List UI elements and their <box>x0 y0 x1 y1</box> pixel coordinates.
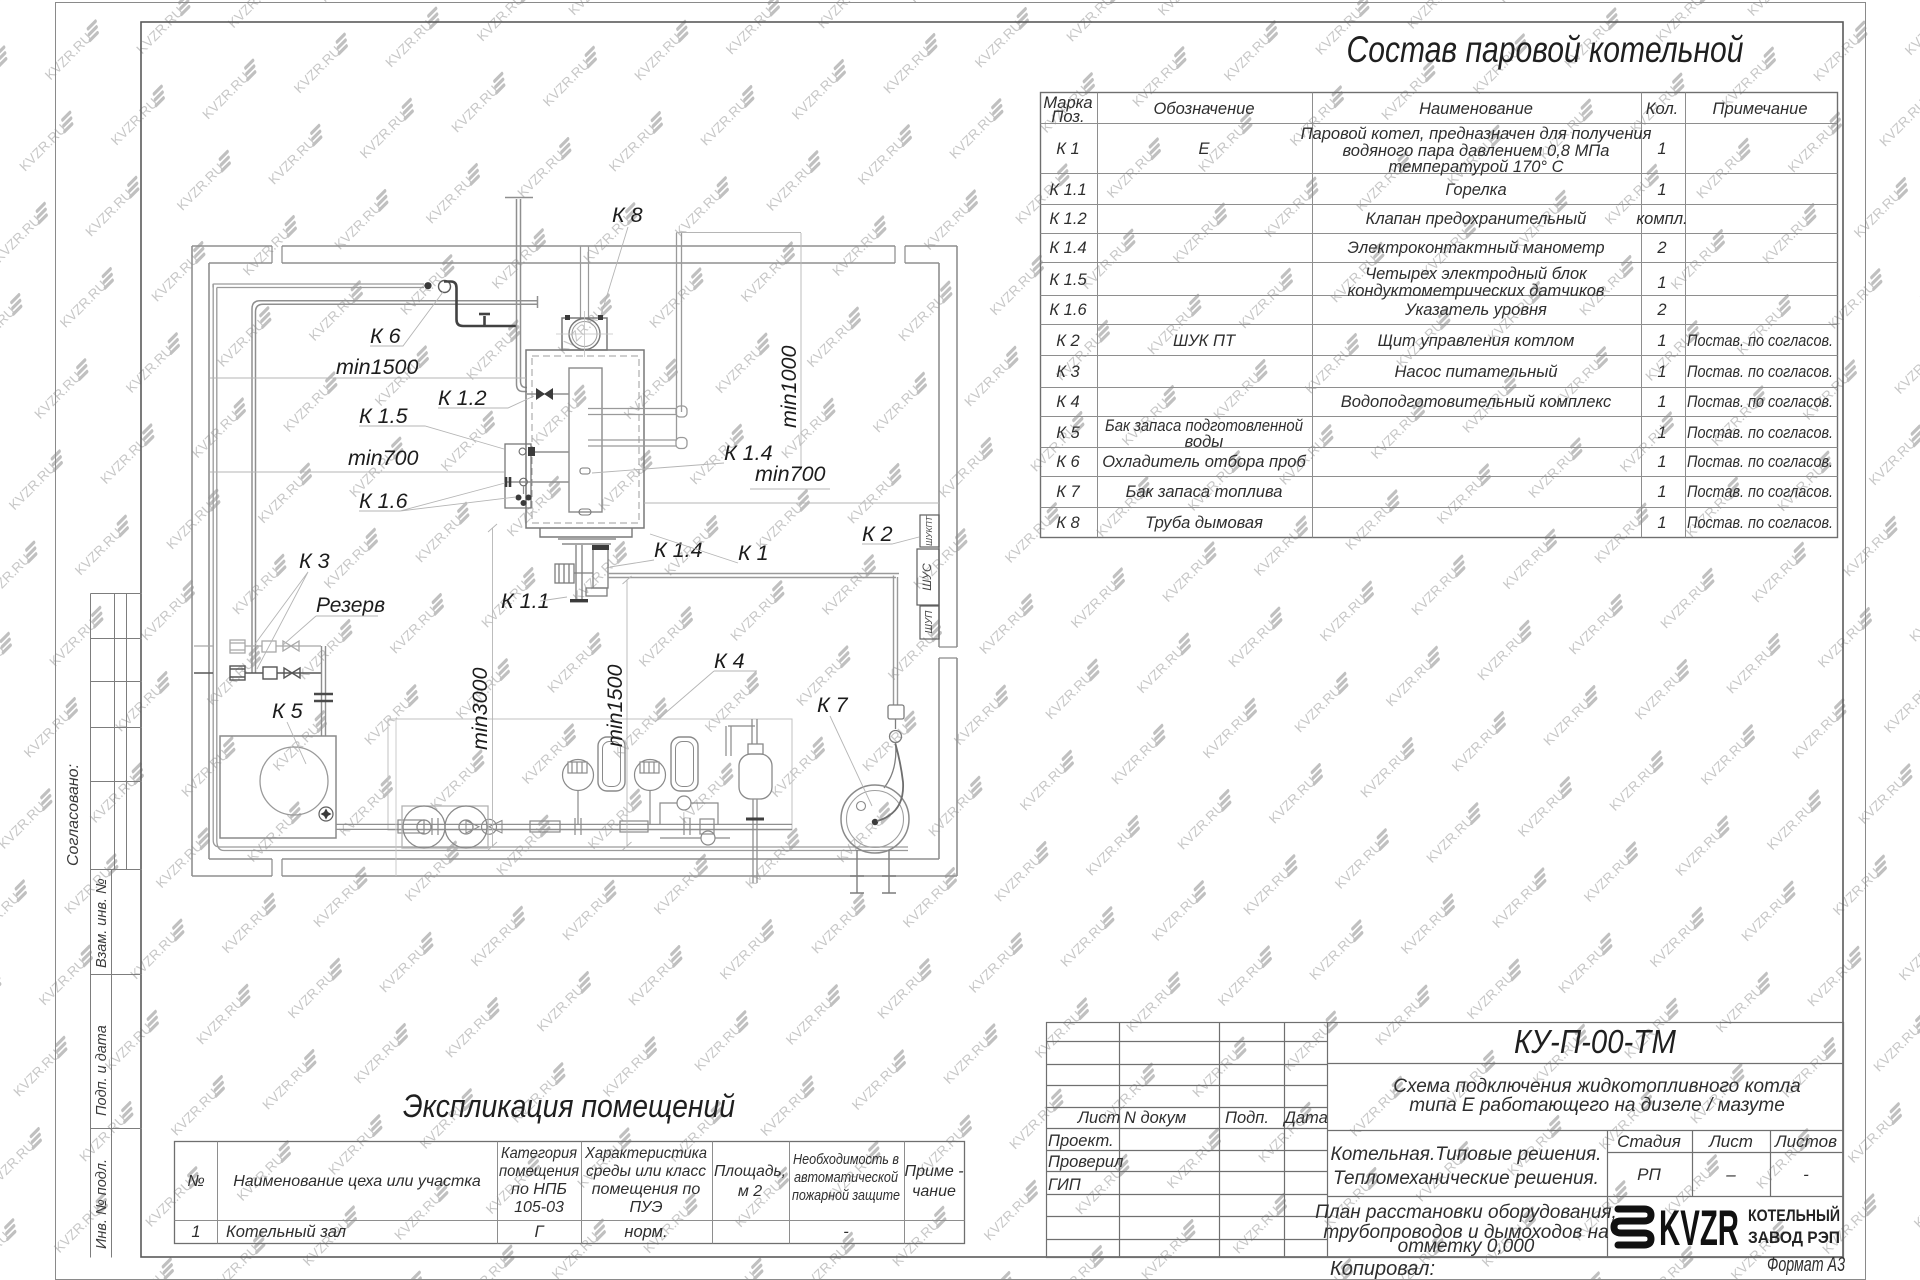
svg-text:min3000: min3000 <box>468 667 492 750</box>
svg-text:1: 1 <box>1657 453 1666 471</box>
svg-text:ШУС: ШУС <box>920 563 934 591</box>
svg-text:Охладитель отбора проб: Охладитель отбора проб <box>1102 453 1306 471</box>
svg-text:Е: Е <box>1198 140 1210 158</box>
svg-text:Дата: Дата <box>1282 1109 1328 1127</box>
svg-text:К 1.5: К 1.5 <box>359 404 409 428</box>
svg-text:К 7: К 7 <box>817 693 849 717</box>
svg-text:Паровой котел, предназначен дл: Паровой котел, предназначен для получени… <box>1301 125 1652 143</box>
svg-text:Листов: Листов <box>1774 1132 1837 1151</box>
svg-text:N докум: N докум <box>1124 1109 1186 1127</box>
svg-text:Котельная.Типовые решения.: Котельная.Типовые решения. <box>1331 1144 1602 1165</box>
svg-text:К 3: К 3 <box>1056 363 1080 381</box>
svg-text:К 1.2: К 1.2 <box>1049 210 1086 228</box>
svg-text:1: 1 <box>1657 424 1666 442</box>
svg-text:Формат А3: Формат А3 <box>1767 1254 1845 1276</box>
svg-text:Щит управления котлом: Щит управления котлом <box>1378 332 1575 350</box>
svg-text:К 1: К 1 <box>738 541 769 565</box>
svg-text:типа Е работающего на дизеле /: типа Е работающего на дизеле / мазуте <box>1409 1095 1785 1116</box>
svg-text:Насос питательный: Насос питательный <box>1394 363 1557 381</box>
svg-text:min1500: min1500 <box>603 664 627 747</box>
svg-text:Схема подключения жидкотопливн: Схема подключения жидкотопливного котла <box>1393 1076 1801 1097</box>
svg-text:Примечание: Примечание <box>1712 100 1807 118</box>
svg-text:Бак запаса топлива: Бак запаса топлива <box>1126 483 1283 501</box>
svg-text:Наименование: Наименование <box>1419 100 1533 118</box>
svg-text:пожарной защите: пожарной защите <box>792 1188 900 1204</box>
svg-text:ПУЭ: ПУЭ <box>629 1199 662 1216</box>
svg-text:К 1.2: К 1.2 <box>438 386 487 410</box>
svg-text:Постав. по согласов.: Постав. по согласов. <box>1687 363 1833 381</box>
svg-text:1: 1 <box>1657 274 1666 292</box>
svg-text:Согласовано:: Согласовано: <box>65 764 82 866</box>
svg-text:№: № <box>187 1173 204 1190</box>
svg-text:Копировал:: Копировал: <box>1330 1258 1435 1280</box>
svg-text:Необходимость в: Необходимость в <box>793 1152 899 1168</box>
svg-text:Стадия: Стадия <box>1617 1132 1681 1151</box>
svg-text:по НПБ: по НПБ <box>511 1181 567 1198</box>
svg-text:К 7: К 7 <box>1056 483 1080 501</box>
svg-text:кондуктометрических датчиков: кондуктометрических датчиков <box>1347 282 1604 300</box>
svg-text:автоматической: автоматической <box>794 1170 898 1186</box>
svg-text:Четырех электродный блок: Четырех электродный блок <box>1365 265 1588 283</box>
svg-text:Категория: Категория <box>501 1145 577 1162</box>
svg-text:К 6: К 6 <box>370 324 401 348</box>
svg-text:помещения: помещения <box>499 1163 579 1180</box>
svg-text:Клапан предохранительный: Клапан предохранительный <box>1366 210 1587 228</box>
svg-text:Обозначение: Обозначение <box>1153 100 1254 118</box>
svg-text:Экспликация помещений: Экспликация помещений <box>403 1088 735 1124</box>
svg-text:Постав. по согласов.: Постав. по согласов. <box>1687 483 1833 501</box>
svg-text:КОТЕЛЬНЫЙ: КОТЕЛЬНЫЙ <box>1748 1206 1840 1225</box>
svg-text:ШУК ПТ: ШУК ПТ <box>1173 332 1237 350</box>
svg-text:К 4: К 4 <box>714 649 745 673</box>
svg-text:105-03: 105-03 <box>514 1199 564 1216</box>
svg-text:Тепломеханические решения.: Тепломеханические решения. <box>1333 1168 1599 1189</box>
svg-text:-: - <box>843 1223 849 1241</box>
svg-text:К 4: К 4 <box>1056 393 1080 411</box>
svg-text:отметку 0,000: отметку 0,000 <box>1398 1236 1535 1257</box>
svg-text:К 1: К 1 <box>1056 140 1080 158</box>
svg-text:РП: РП <box>1637 1165 1661 1184</box>
svg-text:Резерв: Резерв <box>316 594 385 617</box>
svg-text:К 8: К 8 <box>612 203 643 227</box>
svg-text:К 3: К 3 <box>299 549 330 573</box>
svg-text:1: 1 <box>1657 393 1666 411</box>
svg-text:чание: чание <box>912 1183 956 1200</box>
svg-text:температурой 170° С: температурой 170° С <box>1388 158 1563 176</box>
svg-text:Лист: Лист <box>1077 1109 1120 1127</box>
svg-text:Наименование цеха или участка: Наименование цеха или участка <box>233 1173 481 1190</box>
svg-text:ШУКПТ: ШУКПТ <box>924 515 934 545</box>
svg-text:2: 2 <box>1656 301 1666 319</box>
svg-text:Постав. по согласов.: Постав. по согласов. <box>1687 393 1833 411</box>
svg-text:Постав. по согласов.: Постав. по согласов. <box>1687 514 1833 532</box>
svg-text:Подп. и дата: Подп. и дата <box>94 1025 110 1116</box>
svg-text:1: 1 <box>1657 483 1666 501</box>
svg-text:Площадь,: Площадь, <box>714 1163 786 1180</box>
svg-text:min1500: min1500 <box>336 355 419 379</box>
svg-text:Труба дымовая: Труба дымовая <box>1145 514 1263 532</box>
svg-text:–: – <box>1725 1165 1736 1184</box>
svg-text:KVZR: KVZR <box>1659 1200 1739 1256</box>
svg-text:Водоподготовительный комплекс: Водоподготовительный комплекс <box>1341 393 1612 411</box>
svg-text:1: 1 <box>1657 332 1666 350</box>
svg-text:Постав. по согласов.: Постав. по согласов. <box>1687 424 1833 442</box>
svg-text:Состав паровой котельной: Состав паровой котельной <box>1347 29 1744 70</box>
svg-text:-: - <box>1803 1165 1809 1184</box>
svg-text:1: 1 <box>1657 140 1666 158</box>
svg-text:min1000: min1000 <box>777 345 801 428</box>
svg-text:Постав. по согласов.: Постав. по согласов. <box>1687 453 1833 471</box>
svg-text:К 8: К 8 <box>1056 514 1080 532</box>
svg-text:среды или класс: среды или класс <box>586 1163 706 1180</box>
svg-text:Электроконтактный манометр: Электроконтактный манометр <box>1347 239 1604 257</box>
svg-text:План расстановки оборудования,: План расстановки оборудования, <box>1315 1202 1617 1223</box>
svg-text:1: 1 <box>191 1223 200 1241</box>
svg-text:К 1.4: К 1.4 <box>654 538 703 562</box>
svg-text:min700: min700 <box>755 462 826 486</box>
svg-text:помещения по: помещения по <box>592 1181 701 1198</box>
svg-text:Кол.: Кол. <box>1646 100 1678 118</box>
svg-text:Постав. по согласов.: Постав. по согласов. <box>1687 332 1833 350</box>
svg-text:К 2: К 2 <box>862 522 893 546</box>
svg-text:м 2: м 2 <box>738 1183 762 1200</box>
svg-text:min700: min700 <box>348 446 419 470</box>
svg-text:1: 1 <box>1657 514 1666 532</box>
svg-text:К 2: К 2 <box>1056 332 1080 350</box>
svg-text:Проект.: Проект. <box>1048 1132 1114 1150</box>
svg-text:К 1.6: К 1.6 <box>1049 301 1087 319</box>
svg-text:норм.: норм. <box>624 1223 667 1241</box>
svg-text:Поз.: Поз. <box>1051 108 1084 126</box>
svg-text:Лист: Лист <box>1708 1132 1753 1151</box>
svg-text:ГИП: ГИП <box>1048 1176 1081 1194</box>
svg-text:1: 1 <box>1657 363 1666 381</box>
svg-text:К 5: К 5 <box>1056 424 1080 442</box>
svg-text:Характеристика: Характеристика <box>584 1145 707 1162</box>
svg-text:Подп.: Подп. <box>1225 1109 1269 1127</box>
svg-text:Горелка: Горелка <box>1445 181 1506 199</box>
svg-text:ШУП: ШУП <box>924 610 935 634</box>
svg-text:Проверил: Проверил <box>1048 1153 1123 1171</box>
svg-text:Приме -: Приме - <box>904 1163 963 1180</box>
svg-text:Г: Г <box>535 1223 545 1241</box>
svg-text:К 1.1: К 1.1 <box>1049 181 1086 199</box>
svg-text:К 6: К 6 <box>1056 453 1080 471</box>
svg-text:К 1.6: К 1.6 <box>359 489 408 513</box>
svg-text:К 1.5: К 1.5 <box>1049 271 1087 289</box>
svg-text:ЗАВОД РЭП: ЗАВОД РЭП <box>1748 1228 1840 1247</box>
svg-text:К 5: К 5 <box>272 699 304 723</box>
svg-text:Указатель уровня: Указатель уровня <box>1404 301 1547 319</box>
svg-text:воды: воды <box>1185 433 1224 451</box>
svg-text:К 1.4: К 1.4 <box>1049 239 1086 257</box>
svg-text:КУ-П-00-ТМ: КУ-П-00-ТМ <box>1514 1023 1676 1060</box>
svg-text:Котельный зал: Котельный зал <box>226 1223 346 1241</box>
svg-text:компл.: компл. <box>1636 210 1687 228</box>
svg-text:Взам. инв. №: Взам. инв. № <box>94 878 110 968</box>
svg-text:1: 1 <box>1657 181 1666 199</box>
svg-text:Инв. № подл.: Инв. № подл. <box>94 1159 110 1249</box>
svg-text:2: 2 <box>1656 239 1666 257</box>
